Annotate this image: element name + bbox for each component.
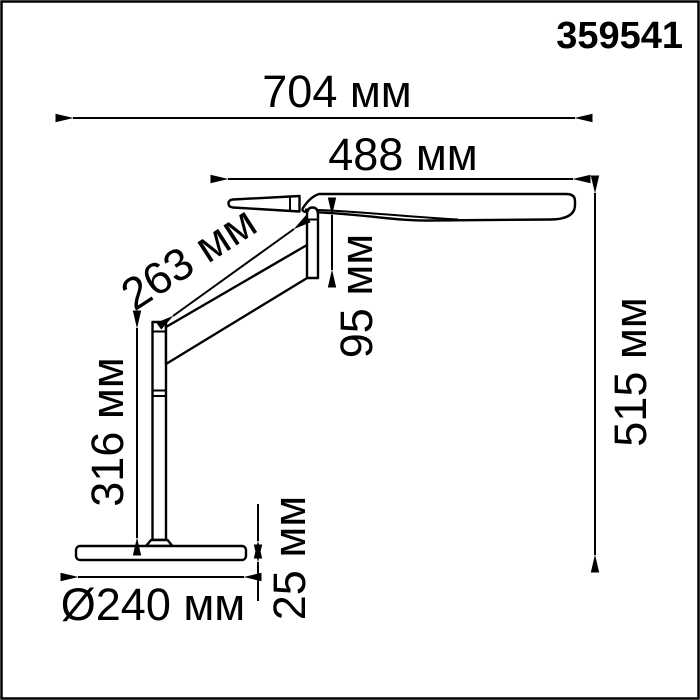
dim-head-length-label: 488 мм: [328, 129, 477, 180]
dim-total-width: 704 мм: [73, 66, 575, 118]
technical-drawing: 704 мм 488 мм 263 мм 95 мм 316 мм 515 мм: [0, 0, 700, 700]
product-code: 359541: [556, 15, 683, 57]
dim-base-diameter: Ø240 мм: [61, 577, 245, 630]
lamp-pole: [153, 322, 167, 540]
dim-head-length: 488 мм: [228, 129, 573, 180]
dim-total-height: 515 мм: [595, 193, 656, 555]
dim-head-drop-label: 95 мм: [331, 234, 382, 358]
lamp-figure: [76, 194, 575, 560]
drawing-page: 704 мм 488 мм 263 мм 95 мм 316 мм 515 мм: [0, 0, 700, 700]
head-hinge-post: [307, 208, 318, 279]
dim-head-drop: 95 мм: [331, 215, 382, 358]
dim-base-diameter-label: Ø240 мм: [61, 579, 245, 630]
dim-total-width-label: 704 мм: [262, 66, 411, 117]
dim-pole-height-label: 316 мм: [82, 357, 133, 506]
lamp-base: [76, 546, 246, 560]
dim-total-height-label: 515 мм: [605, 297, 656, 446]
dim-base-thickness-label: 25 мм: [264, 496, 315, 620]
lamp-head: [303, 194, 575, 221]
dim-base-thickness: 25 мм: [258, 496, 315, 620]
dim-pole-height: 316 мм: [82, 328, 137, 538]
